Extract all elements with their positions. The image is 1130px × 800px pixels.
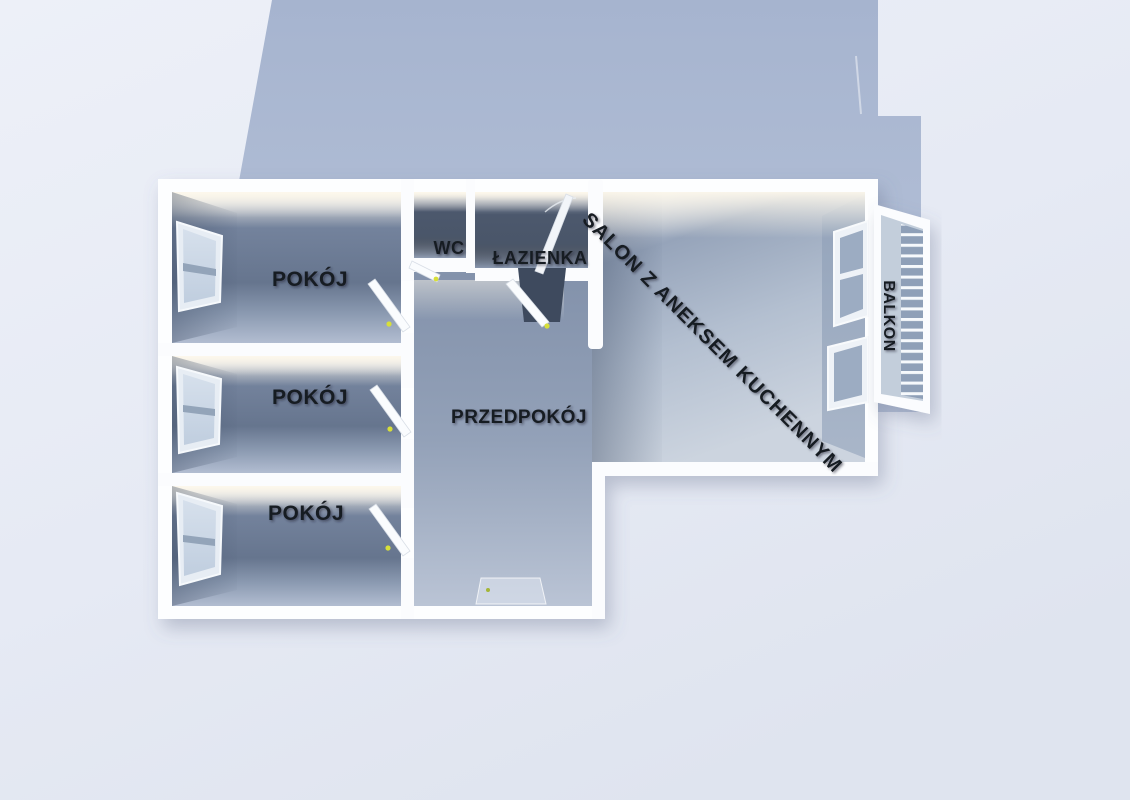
door-handle: [386, 321, 391, 326]
door-handle: [544, 323, 549, 328]
wall-divider-2: [158, 473, 414, 486]
wc-bath-divider: [466, 179, 475, 273]
window-salon-upper: [834, 221, 868, 326]
label-pokoj-1: POKÓJ: [272, 267, 348, 291]
bath-east-wall: [588, 179, 603, 349]
floor-plan-svg: POKÓJ POKÓJ POKÓJ WC ŁAZIENKA PRZEDPOKÓJ…: [0, 0, 1130, 800]
entrance-mat: [476, 578, 546, 604]
floor-plan-render: POKÓJ POKÓJ POKÓJ WC ŁAZIENKA PRZEDPOKÓJ…: [0, 0, 1130, 800]
label-pokoj-2: POKÓJ: [272, 385, 348, 409]
corridor-wall-seg4: [401, 558, 414, 619]
door-handle: [434, 277, 439, 282]
label-balkon: BALKON: [880, 280, 897, 351]
windows-west: [177, 222, 222, 585]
window-pokoj-2: [177, 367, 221, 453]
label-przedpokoj: PRZEDPOKÓJ: [451, 406, 587, 428]
wall-divider-1: [158, 343, 414, 356]
door-handle: [385, 545, 390, 550]
label-lazienka: ŁAZIENKA: [493, 248, 588, 268]
window-pokoj-3: [177, 493, 222, 585]
corridor-wall-seg2: [401, 333, 414, 388]
window-salon-lower: [828, 337, 868, 410]
label-wc: WC: [434, 238, 465, 258]
door-handle: [387, 426, 392, 431]
balcony-railing: [901, 224, 923, 399]
label-pokoj-3: POKÓJ: [268, 501, 344, 525]
windows-salon: [828, 221, 868, 410]
window-pokoj-1: [177, 222, 222, 311]
corridor-east-wall: [592, 462, 605, 619]
corridor-wall-seg3: [401, 439, 414, 508]
